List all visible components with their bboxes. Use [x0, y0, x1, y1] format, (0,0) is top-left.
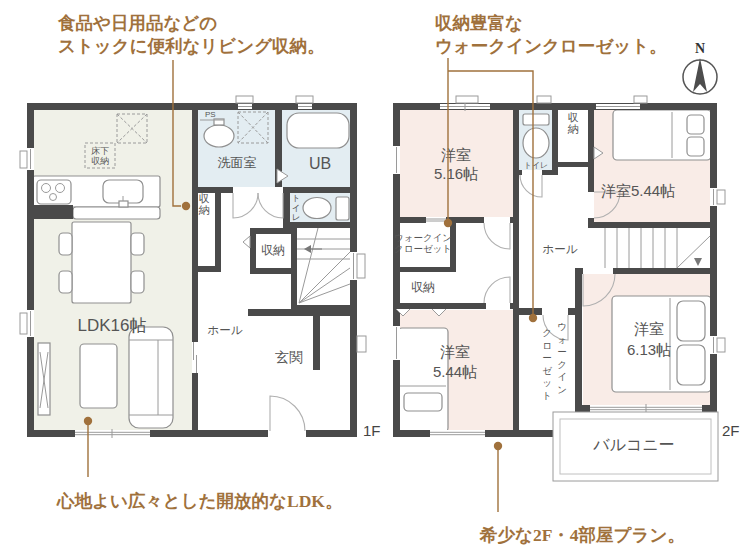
room-label-bedroom4-name: 洋室 — [634, 320, 664, 337]
room-label-storage-side: 収納 — [199, 192, 210, 216]
room-label-bedroom2: 洋室5.44帖 — [601, 182, 675, 199]
annotation-top-right-line2: ウォークインクローゼット。 — [435, 36, 667, 56]
room-label-entrance: 玄関 — [275, 349, 303, 365]
annotation-top-right-line1: 収納豊富な — [435, 13, 523, 33]
bed-icon-top-right — [613, 110, 711, 160]
underfloor-storage-label-2: 収納 — [91, 156, 109, 166]
room-label-toilet-1f: トイレ — [292, 193, 301, 222]
room-label-hall-1f: ホール — [207, 324, 242, 336]
tv-board-icon — [38, 343, 50, 415]
floor2-label: 2F — [722, 422, 740, 439]
stairs-icon-1f — [297, 228, 350, 303]
room-label-bedroom3-name: 洋室 — [440, 343, 470, 360]
room-label-balcony: バルコニー — [592, 436, 675, 453]
sofa-icon — [129, 327, 173, 428]
room-label-bedroom1-size: 5.16帖 — [434, 165, 478, 182]
coffee-table-icon — [80, 344, 117, 408]
floorplan-drawing: 床下 収納 — [0, 0, 752, 556]
balcony: バルコニー — [553, 412, 718, 481]
dining-table-icon — [59, 222, 144, 303]
floor1-label: 1F — [363, 422, 381, 439]
compass-north-label: N — [695, 41, 705, 56]
room-label-wic-upper-2: クローゼット — [394, 243, 452, 254]
room-label-storage-left: 収納 — [411, 280, 435, 294]
stairs-icon-2f — [605, 228, 710, 268]
annotation-top-left-line1: 食品や日用品などの — [57, 13, 217, 33]
annotation-bottom-right: 希少な2F・4部屋プラン。 — [479, 525, 685, 545]
room-label-bedroom4-size: 6.13帖 — [627, 341, 671, 358]
room-label-bath: UB — [309, 155, 331, 172]
toilet-icon-1f — [303, 197, 349, 220]
room-label-bedroom1-name: 洋室 — [441, 146, 471, 163]
bathtub-icon — [287, 113, 349, 148]
room-label-storage-top: 収納 — [568, 111, 579, 135]
annotation-top-left-line2: ストックに便利なリビング収納。 — [58, 36, 325, 56]
room-label-hall-2f: ホール — [542, 243, 577, 255]
underfloor-storage-label-1: 床下 — [91, 146, 109, 156]
annotation-bottom-left: 心地よい広々とした開放的なLDK。 — [56, 491, 342, 511]
toilet-icon-2f — [523, 114, 549, 158]
room-label-ldk: LDK16帖 — [78, 316, 147, 335]
room-label-storage-hall: 収納 — [261, 243, 285, 257]
floor2-plan: バルコニー 洋室 5.16帖 トイレ 収納 洋室5.44帖 ウォークイン クロー… — [393, 96, 740, 481]
floorplan-page: 床下 収納 — [0, 0, 752, 556]
room-label-toilet-2f: トイレ — [524, 161, 549, 170]
room-label-wic-upper-1: ウォークイン — [394, 232, 452, 243]
room-label-bedroom3-size: 5.44帖 — [433, 363, 477, 380]
floor1-plan: 床下 収納 — [20, 96, 381, 439]
room-label-ps: PS — [205, 110, 216, 119]
room-label-washroom: 洗面室 — [218, 155, 257, 170]
compass-icon: N — [683, 41, 717, 94]
room-label-wic-center-2: クローゼット — [542, 327, 552, 401]
room-label-wic-center-1: ウォークイン — [557, 321, 567, 395]
